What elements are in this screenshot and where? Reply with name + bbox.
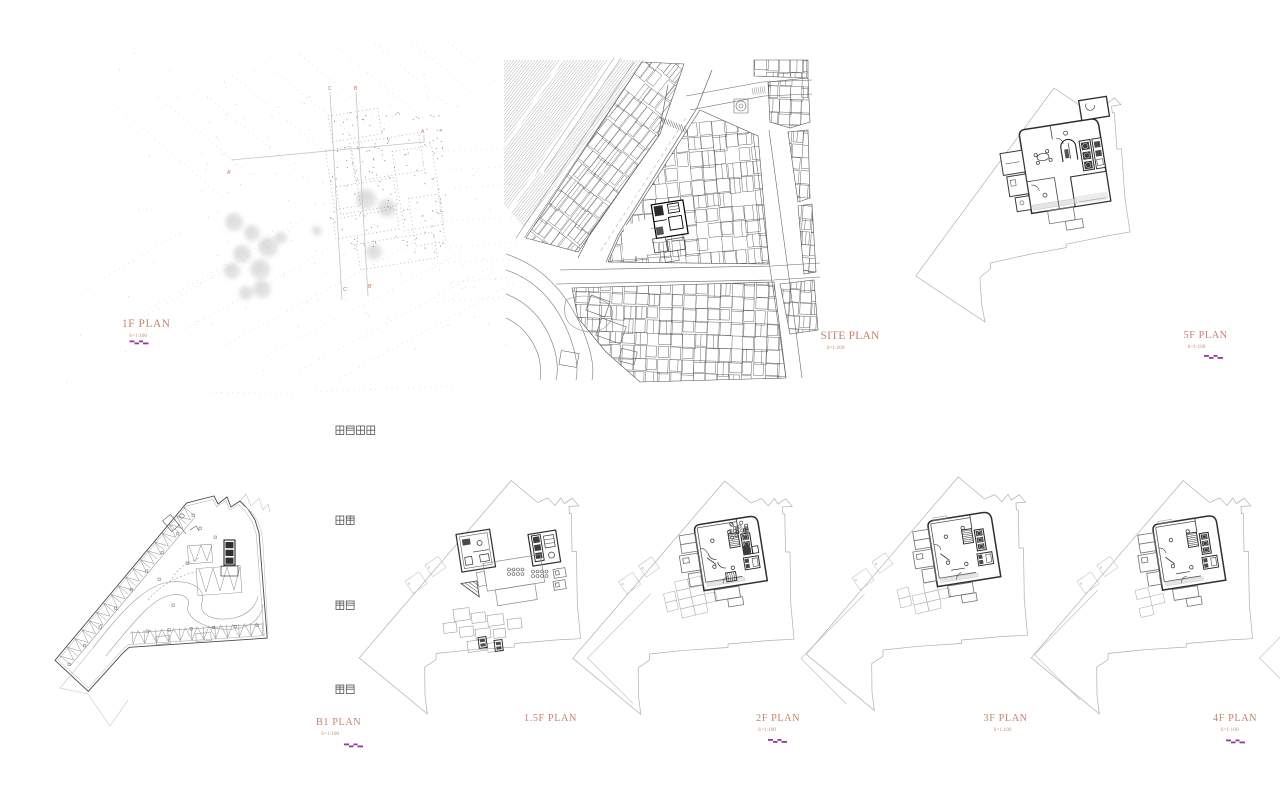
svg-text:A': A' — [227, 170, 231, 176]
svg-text:S=1:200: S=1:200 — [827, 345, 845, 351]
svg-text:3F PLAN: 3F PLAN — [984, 713, 1028, 724]
svg-text:S=1:100: S=1:100 — [321, 731, 339, 737]
svg-text:C': C' — [343, 287, 348, 293]
svg-text:C: C — [328, 86, 332, 92]
svg-text:1F PLAN: 1F PLAN — [122, 318, 170, 330]
svg-text:S=1:100: S=1:100 — [129, 333, 147, 339]
svg-text:B1 PLAN: B1 PLAN — [316, 717, 361, 728]
svg-text:5F PLAN: 5F PLAN — [1184, 330, 1228, 341]
svg-text:2F PLAN: 2F PLAN — [756, 713, 800, 724]
svg-text:1.5F PLAN: 1.5F PLAN — [524, 713, 577, 724]
svg-text:S=1:100: S=1:100 — [758, 727, 776, 733]
svg-text:S=1:100: S=1:100 — [994, 727, 1012, 733]
svg-text:SITE PLAN: SITE PLAN — [821, 330, 880, 342]
svg-text:B': B' — [368, 284, 372, 290]
svg-text:4F PLAN: 4F PLAN — [1213, 713, 1257, 724]
svg-text:S=1:100: S=1:100 — [1188, 344, 1206, 350]
svg-text:S=1:100: S=1:100 — [1221, 727, 1239, 733]
